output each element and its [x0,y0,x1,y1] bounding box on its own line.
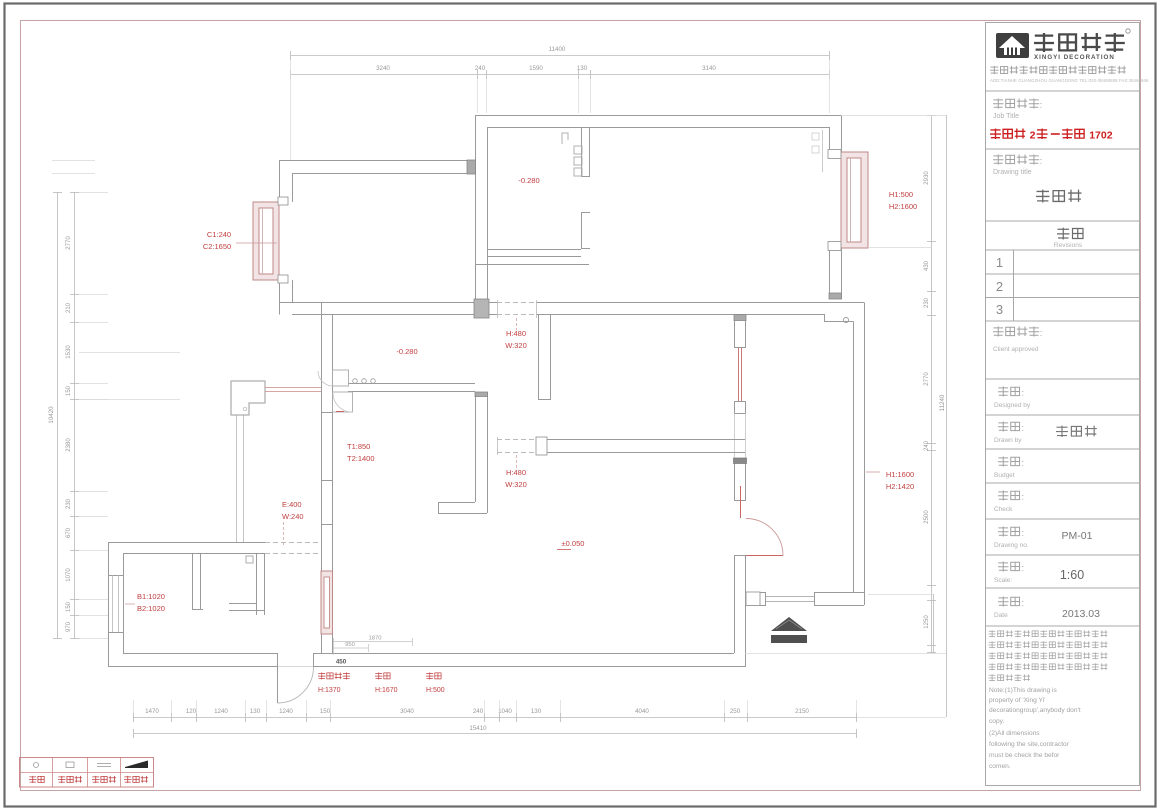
svg-text:670: 670 [66,527,72,538]
svg-text:2770: 2770 [66,236,72,250]
svg-text:Date: Date [994,612,1008,619]
svg-text:-0.280: -0.280 [518,176,539,185]
svg-text:Job Title: Job Title [993,113,1019,120]
svg-text:1250: 1250 [924,615,930,629]
svg-text:130: 130 [531,708,542,715]
svg-text:2500: 2500 [924,510,930,524]
svg-text:B1:1020: B1:1020 [137,592,165,601]
svg-text::: : [1022,492,1025,502]
svg-text:2: 2 [1030,130,1036,142]
svg-text:Designed by: Designed by [994,402,1031,409]
svg-text:1870: 1870 [369,636,382,642]
svg-text:4040: 4040 [635,708,649,715]
svg-text::: : [1022,528,1025,538]
svg-text:3: 3 [996,302,1003,317]
svg-text:1240: 1240 [279,708,293,715]
svg-text:1070: 1070 [66,568,72,582]
svg-text:±0.050: ±0.050 [562,539,585,548]
svg-text:11400: 11400 [549,46,566,53]
svg-text:H:1670: H:1670 [375,687,398,694]
svg-text:Client approved: Client approved [993,346,1039,353]
svg-text:H2:1420: H2:1420 [886,482,914,491]
svg-text:230: 230 [924,297,930,308]
svg-text:1240: 1240 [214,708,228,715]
svg-text:3140: 3140 [702,65,716,72]
svg-text:150: 150 [66,385,72,396]
svg-text:T2:1400: T2:1400 [347,454,375,463]
svg-text::: : [1040,100,1043,110]
svg-text:Budget: Budget [994,472,1015,479]
svg-text:150: 150 [66,601,72,612]
svg-text:1530: 1530 [66,345,72,359]
svg-text:15410: 15410 [469,725,487,732]
svg-text:property of 'Xing Yi': property of 'Xing Yi' [989,697,1045,704]
svg-text:B2:1020: B2:1020 [137,604,165,613]
svg-text:120: 120 [186,708,197,715]
svg-text:Note:(1)This drawing is: Note:(1)This drawing is [989,687,1057,694]
svg-text:T1:850: T1:850 [347,442,370,451]
svg-text:2150: 2150 [795,708,809,715]
svg-text:240: 240 [475,65,486,72]
svg-text:250: 250 [730,708,741,715]
svg-text:1040: 1040 [498,708,512,715]
svg-text:H:500: H:500 [426,687,445,694]
svg-text:950: 950 [345,642,355,648]
svg-text:Drawn by: Drawn by [994,437,1022,444]
svg-text:W:320: W:320 [505,480,527,489]
svg-text:10420: 10420 [48,406,55,424]
svg-text:1:60: 1:60 [1060,568,1084,582]
svg-text:150: 150 [320,708,331,715]
svg-text:copy.: copy. [989,718,1004,725]
svg-text:970: 970 [66,621,72,632]
svg-text::: : [1040,328,1043,338]
svg-text:PM-01: PM-01 [1062,530,1093,542]
svg-text:2930: 2930 [924,171,930,185]
svg-text:2770: 2770 [924,372,930,386]
svg-text:2013.03: 2013.03 [1062,608,1100,620]
svg-text:H:480: H:480 [506,329,526,338]
svg-text::: : [1022,598,1025,608]
svg-text:130: 130 [250,708,261,715]
svg-text:W:320: W:320 [505,341,527,350]
svg-text:1: 1 [996,255,1003,270]
svg-text:430: 430 [924,260,930,271]
svg-text::: : [1022,388,1025,398]
svg-text:1470: 1470 [145,708,159,715]
svg-text:decorationgroup',anybody don't: decorationgroup',anybody don't [989,707,1081,714]
svg-text:1702: 1702 [1089,130,1113,142]
svg-text:W:240: W:240 [282,512,304,521]
svg-text:Scale:: Scale: [994,577,1012,584]
svg-text:Check: Check [994,506,1013,513]
svg-text::: : [1022,458,1025,468]
svg-text:XINGYI DECORATION: XINGYI DECORATION [1034,54,1115,61]
svg-text:230: 230 [66,498,72,509]
svg-text:comen.: comen. [989,763,1011,770]
svg-text:1590: 1590 [529,65,543,72]
svg-text:210: 210 [66,302,72,313]
svg-text:-0.280: -0.280 [396,347,417,356]
svg-text:Drawing title: Drawing title [993,169,1032,176]
svg-text:2: 2 [996,279,1003,294]
svg-text:11240: 11240 [939,394,946,411]
svg-text::: : [1022,563,1025,573]
svg-text:H:1370: H:1370 [318,687,341,694]
svg-text:3040: 3040 [400,708,414,715]
svg-text:C2:1650: C2:1650 [203,242,231,251]
svg-text:240: 240 [473,708,484,715]
svg-text:E:400: E:400 [282,500,302,509]
svg-text::: : [1040,156,1043,166]
svg-text:H2:1600: H2:1600 [889,202,917,211]
svg-text:following the site,contractor: following the site,contractor [989,741,1070,748]
svg-text:H1:1600: H1:1600 [886,470,914,479]
svg-text:450: 450 [336,659,347,666]
svg-text:must be check the befor: must be check the befor [989,752,1060,759]
svg-text:C1:240: C1:240 [207,230,231,239]
svg-text:Revisions: Revisions [1054,242,1083,249]
svg-text:H:480: H:480 [506,468,526,477]
svg-text:Drawing no.: Drawing no. [994,542,1029,549]
svg-text::: : [1022,423,1025,433]
svg-text:ADD:TIANHE GUANGZHOU GUANGDONG: ADD:TIANHE GUANGZHOU GUANGDONG TEL:020-3… [990,78,1149,83]
svg-text:2380: 2380 [66,438,72,452]
svg-text:240: 240 [924,440,930,451]
svg-text:(2)All dimensions: (2)All dimensions [989,730,1040,737]
svg-text:H1:500: H1:500 [889,190,913,199]
svg-text:3240: 3240 [376,65,390,72]
svg-text:130: 130 [577,65,588,72]
